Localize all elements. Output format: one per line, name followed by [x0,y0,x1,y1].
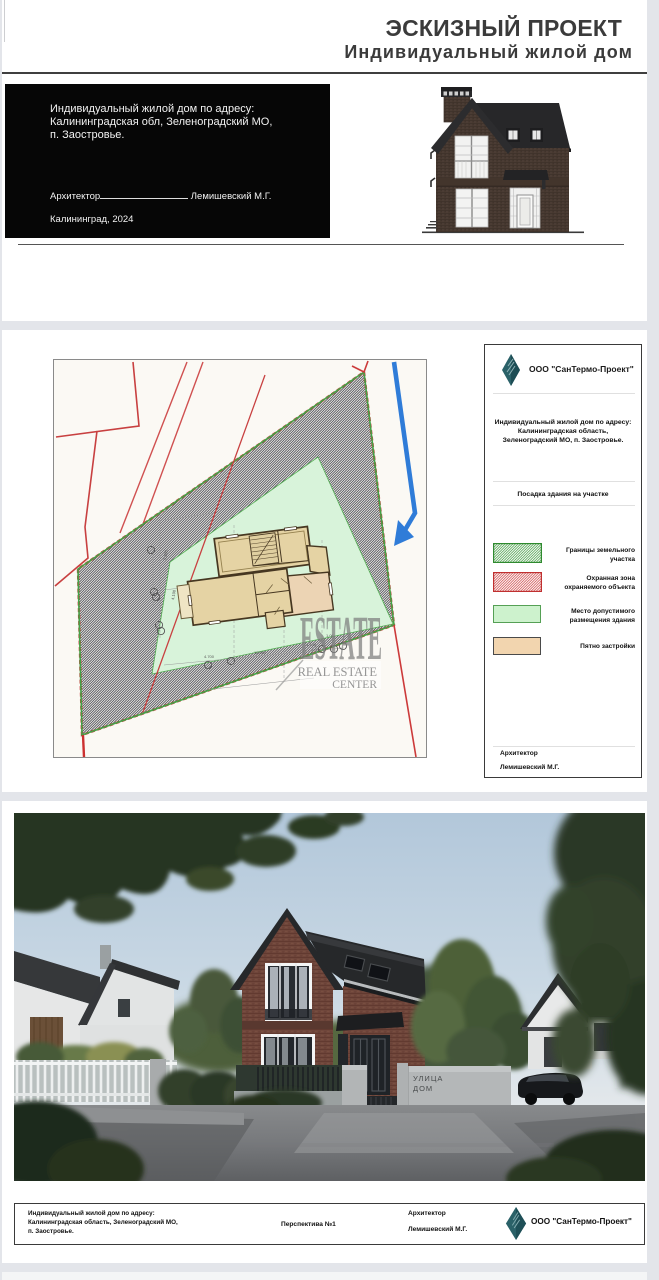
svg-text:REAL ESTATE: REAL ESTATE [298,665,378,679]
svg-text:ДОМ: ДОМ [413,1084,433,1093]
svg-text:4.700: 4.700 [204,654,215,659]
svg-text:CENTER: CENTER [332,679,377,691]
svg-text:УЛИЦА: УЛИЦА [413,1074,443,1083]
svg-text:12.580: 12.580 [254,650,267,655]
